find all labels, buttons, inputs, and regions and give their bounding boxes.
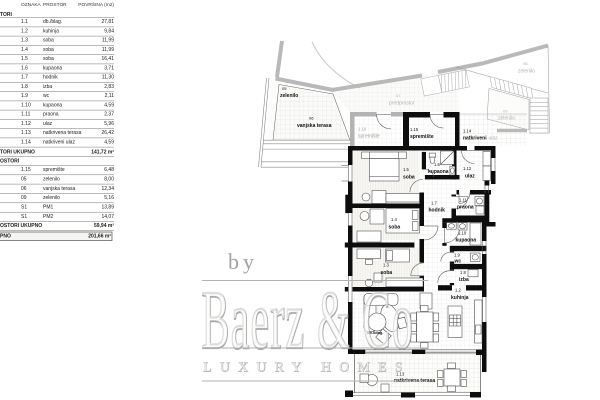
svg-text:1.8: 1.8: [21, 84, 28, 90]
svg-text:praona: praona: [457, 205, 474, 211]
svg-text:OZNAKA: OZNAKA: [21, 2, 42, 8]
svg-text:natkriveni ulaz: natkriveni ulaz: [43, 139, 75, 145]
svg-text:1.4: 1.4: [391, 217, 397, 222]
svg-text:izba: izba: [459, 277, 469, 283]
svg-text:zelenilo: zelenilo: [43, 176, 60, 182]
svg-text:natkrivena terasa: natkrivena terasa: [43, 130, 82, 136]
svg-text:1.5: 1.5: [403, 167, 409, 172]
svg-text:1.3: 1.3: [21, 38, 28, 44]
svg-text:1.7: 1.7: [431, 201, 437, 206]
svg-text:5,96: 5,96: [104, 121, 114, 127]
svg-text:Baerz & Co: Baerz & Co: [201, 274, 414, 366]
svg-text:soba: soba: [389, 225, 401, 231]
svg-text:1.13: 1.13: [21, 130, 31, 136]
svg-text:vanjska terasa: vanjska terasa: [43, 186, 75, 192]
svg-text:1.4: 1.4: [21, 47, 28, 53]
svg-text:1.15: 1.15: [410, 127, 419, 132]
svg-text:9,84: 9,84: [104, 28, 114, 34]
svg-text:27,81: 27,81: [101, 19, 114, 25]
svg-text:hodnik: hodnik: [429, 208, 446, 214]
svg-text:6,48: 6,48: [104, 167, 114, 173]
svg-text:1.2: 1.2: [21, 28, 28, 34]
svg-text:4,59: 4,59: [104, 139, 114, 145]
svg-text:ulaz: ulaz: [43, 121, 53, 127]
svg-text:S1: S1: [21, 214, 27, 220]
svg-text:1.9: 1.9: [21, 93, 28, 99]
svg-text:kupaona: kupaona: [456, 238, 477, 244]
svg-text:1.2: 1.2: [455, 288, 461, 293]
svg-text:kupaona: kupaona: [43, 102, 62, 108]
svg-text:spremište: spremište: [410, 134, 434, 140]
svg-text:1.14: 1.14: [21, 139, 31, 145]
svg-text:1.12: 1.12: [21, 121, 31, 127]
svg-text:TORI: TORI: [0, 12, 12, 18]
svg-text:izba: izba: [43, 84, 52, 90]
svg-text:wc: wc: [454, 259, 462, 265]
svg-text:1.3: 1.3: [383, 263, 389, 268]
svg-text:praona: praona: [43, 112, 59, 118]
svg-text:soba: soba: [43, 38, 54, 44]
svg-text:PM2: PM2: [43, 214, 54, 220]
svg-text:natkriveni: natkriveni: [463, 136, 487, 142]
svg-text:PROSTOR: PROSTOR: [43, 2, 67, 8]
svg-text:2,83: 2,83: [104, 84, 114, 90]
svg-text:09: 09: [503, 109, 508, 114]
svg-text:S1: S1: [21, 205, 27, 211]
svg-text:2,37: 2,37: [104, 112, 114, 118]
svg-text:1.10: 1.10: [358, 127, 367, 132]
svg-text:vanjska terasa: vanjska terasa: [297, 123, 332, 129]
svg-text:zelenilo: zelenilo: [518, 69, 535, 75]
svg-text:06: 06: [21, 186, 27, 192]
svg-text:1.10: 1.10: [458, 231, 467, 236]
svg-text:OSTORI: OSTORI: [0, 159, 20, 165]
svg-text:59,94 m²: 59,94 m²: [94, 223, 114, 229]
svg-text:1.15: 1.15: [21, 167, 31, 173]
svg-text:kupaona: kupaona: [428, 169, 449, 175]
svg-text:by: by: [228, 249, 258, 274]
svg-text:14,07: 14,07: [101, 214, 114, 220]
svg-text:soba: soba: [43, 47, 54, 53]
svg-text:1.7: 1.7: [21, 75, 28, 81]
svg-text:1.14: 1.14: [463, 129, 472, 134]
svg-text:13,89: 13,89: [101, 205, 114, 211]
svg-text:12,34: 12,34: [101, 186, 114, 192]
svg-text:hodnik: hodnik: [43, 75, 58, 81]
svg-text:2,11: 2,11: [105, 93, 115, 99]
svg-text:zelenilo: zelenilo: [43, 195, 60, 201]
svg-text:LUXURY HOMES: LUXURY HOMES: [203, 359, 411, 374]
svg-text:kupaona: kupaona: [43, 65, 62, 71]
svg-text:1.10: 1.10: [21, 102, 31, 108]
svg-text:16,41: 16,41: [101, 56, 114, 62]
svg-text:soba: soba: [43, 56, 54, 62]
svg-text:1.8: 1.8: [460, 270, 466, 275]
svg-text:1.11: 1.11: [459, 198, 468, 203]
svg-text:08: 08: [523, 61, 528, 66]
svg-text:spremište: spremište: [43, 167, 65, 173]
svg-text:1.6: 1.6: [434, 162, 440, 167]
svg-text:db./blag.: db./blag.: [43, 19, 62, 25]
svg-text:POVRŠINA (m2): POVRŠINA (m2): [78, 1, 114, 8]
svg-text:05: 05: [21, 176, 27, 182]
svg-text:kuhinja: kuhinja: [451, 295, 469, 301]
svg-text:06: 06: [309, 116, 314, 121]
svg-text:141,72 m²: 141,72 m²: [91, 150, 114, 156]
svg-text:predprostor: predprostor: [389, 101, 415, 107]
svg-text:1.1: 1.1: [21, 19, 28, 25]
svg-text:3,71: 3,71: [104, 65, 114, 71]
svg-text:07: 07: [396, 93, 401, 98]
svg-text:11,99: 11,99: [102, 47, 114, 53]
svg-text:spremište: spremište: [358, 134, 380, 140]
svg-text:8,00: 8,00: [104, 176, 114, 182]
svg-text:ulaz: ulaz: [465, 174, 475, 180]
svg-text:zelenilo: zelenilo: [280, 93, 298, 99]
svg-text:soba: soba: [403, 175, 415, 181]
svg-text:wc: wc: [43, 93, 50, 99]
svg-text:11,30: 11,30: [102, 75, 114, 81]
svg-text:kuhinja: kuhinja: [43, 28, 59, 34]
svg-text:26,42: 26,42: [101, 130, 114, 136]
svg-text:ulaz: ulaz: [489, 136, 499, 142]
svg-text:PNO: PNO: [0, 233, 11, 239]
svg-text:1.9: 1.9: [454, 253, 460, 258]
svg-text:5,16: 5,16: [104, 195, 114, 201]
svg-text:1.6: 1.6: [21, 65, 28, 71]
svg-text:1.5: 1.5: [21, 56, 28, 62]
svg-text:11,99: 11,99: [102, 38, 114, 44]
svg-text:PM1: PM1: [43, 205, 54, 211]
svg-text:201,66 m²: 201,66 m²: [88, 233, 111, 239]
svg-text:1.11: 1.11: [21, 112, 31, 118]
svg-text:4,59: 4,59: [104, 102, 114, 108]
svg-text:OSTORI UKUPNO: OSTORI UKUPNO: [0, 223, 42, 229]
svg-text:TORI UKUPNO: TORI UKUPNO: [0, 150, 35, 156]
svg-text:05: 05: [282, 86, 287, 91]
svg-text:1.12: 1.12: [463, 166, 472, 171]
svg-text:zelenilo: zelenilo: [498, 116, 515, 122]
svg-text:09: 09: [21, 195, 27, 201]
